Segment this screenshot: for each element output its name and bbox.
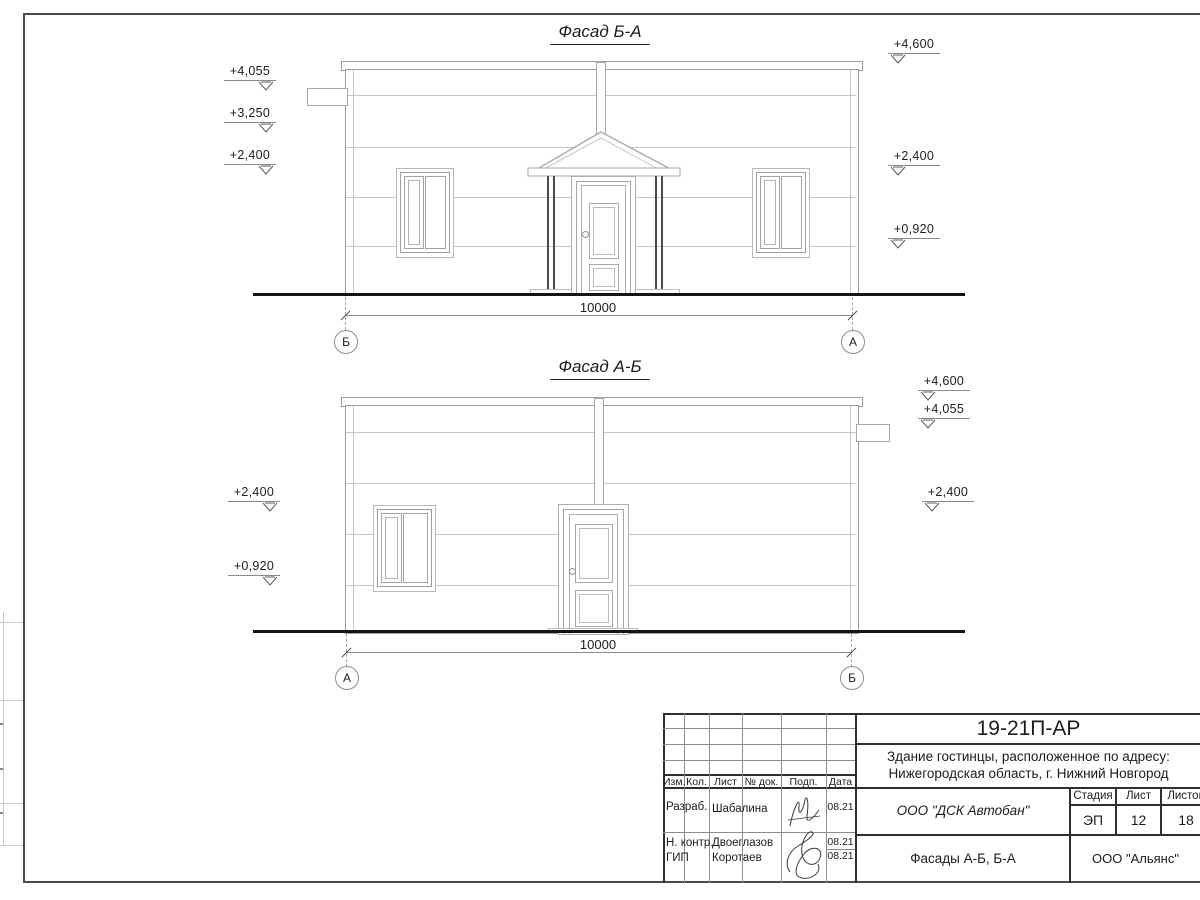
elevation-mark: +0,920 <box>888 222 940 239</box>
rear-door <box>558 504 629 635</box>
project-name-line1: Здание гостинцы, расположенное по адресу… <box>857 749 1200 764</box>
axis-marker-b: Б <box>334 330 358 354</box>
elevation-arrow-icon <box>258 81 274 92</box>
elevation-arrow-icon <box>890 239 906 250</box>
elevation-arrow-icon <box>890 54 906 65</box>
signer-date: 08.21 <box>826 850 855 862</box>
col-header-list: Лист <box>709 776 742 788</box>
dimension-label: 10000 <box>558 300 638 315</box>
corner-trim-right <box>850 406 851 631</box>
vent-pipe <box>596 62 606 134</box>
signer-name: Коротаев <box>712 852 762 864</box>
signature <box>782 828 826 880</box>
door-handle <box>582 231 589 238</box>
corner-trim-left <box>353 406 354 631</box>
porch-post <box>547 176 549 293</box>
frame-top <box>23 13 1200 15</box>
door-handle <box>569 568 576 575</box>
elevation-mark: +4,055 <box>224 64 276 81</box>
side-pipe <box>307 88 348 106</box>
elevation-mark: +4,055 <box>918 402 970 419</box>
window-sash-left <box>404 176 424 249</box>
door-panel-bottom <box>575 590 613 627</box>
signature <box>786 792 824 832</box>
porch-post <box>553 176 555 293</box>
dimension-line <box>345 315 852 316</box>
elevation-arrow-icon <box>920 419 936 430</box>
col-header-doc: № док. <box>742 776 781 788</box>
frame-bottom <box>23 881 1200 883</box>
elevation-mark: +2,400 <box>922 485 974 502</box>
corner-trim-left <box>353 70 354 293</box>
window <box>373 505 436 592</box>
dimension-label: 10000 <box>558 637 638 652</box>
elevation-arrow-icon <box>258 123 274 134</box>
signer-role: Разраб. <box>666 801 707 813</box>
signer-name: Шабалина <box>712 803 768 815</box>
col-header-izm: Изм. <box>663 776 684 788</box>
signer-date: 08.21 <box>826 801 855 813</box>
window-sash-right <box>781 176 802 249</box>
sheet-header: Лист <box>1117 790 1160 802</box>
ground-line <box>253 293 965 296</box>
axis-marker-b: Б <box>840 666 864 690</box>
vent-pipe <box>594 398 604 507</box>
window-glass <box>385 517 398 579</box>
elevation-arrow-icon <box>262 502 278 513</box>
elevation-mark: +2,400 <box>228 485 280 502</box>
door-panel-top <box>589 203 619 259</box>
signer-name: Двоеглазов <box>712 837 773 849</box>
elevation-mark: +0,920 <box>228 559 280 576</box>
stage-header: Стадия <box>1071 790 1115 802</box>
window-sash-left <box>760 176 780 249</box>
ground-line <box>253 630 965 633</box>
door-panel-bottom <box>589 264 619 291</box>
org-name: ООО "Альянс" <box>1071 851 1200 866</box>
signer-date: 08.21 <box>826 836 855 848</box>
frame-left <box>23 13 25 883</box>
porch-canopy <box>526 127 682 179</box>
elevation-arrow-icon <box>262 576 278 587</box>
col-header-podp: Подп. <box>781 776 826 788</box>
elevation-arrow-icon <box>890 166 906 177</box>
signer-role: Н. контр. <box>666 837 713 849</box>
window <box>752 168 810 258</box>
elevation-arrow-icon <box>920 391 936 402</box>
window <box>396 168 454 258</box>
drawing-title: Фасады А-Б, Б-А <box>857 851 1069 866</box>
window-sash-right <box>403 513 428 583</box>
elevation-mark: +2,400 <box>224 148 276 165</box>
window-frame <box>400 172 450 253</box>
window-frame <box>756 172 806 253</box>
sheets-header: Листов <box>1162 790 1200 802</box>
signer-role: ГИП <box>666 852 689 864</box>
door-panel-inset <box>593 207 615 255</box>
porch-post <box>655 176 657 293</box>
window-frame <box>377 509 432 587</box>
stage-value: ЭП <box>1071 812 1115 828</box>
window-glass <box>764 180 776 245</box>
project-name-line2: Нижегородская область, г. Нижний Новгоро… <box>857 766 1200 781</box>
side-pipe <box>856 424 890 442</box>
window-sash-left <box>381 513 402 583</box>
elevation-arrow-icon <box>924 502 940 513</box>
sheet-value: 12 <box>1117 812 1160 828</box>
drawing-sheet: Фасад Б-А <box>0 0 1200 900</box>
entrance-door <box>571 176 636 295</box>
elevation-mark: +2,400 <box>888 149 940 166</box>
elevation-mark: +4,600 <box>918 374 970 391</box>
col-header-data: Дата <box>826 776 855 788</box>
porch-post <box>661 176 663 293</box>
contractor-name: ООО "ДСК Автобан" <box>857 803 1069 818</box>
sheets-value: 18 <box>1162 812 1200 828</box>
elevation-mark: +4,600 <box>888 37 940 54</box>
elevation-mark: +3,250 <box>224 106 276 123</box>
dimension-line <box>346 652 851 653</box>
col-header-kol: Кол. <box>684 776 709 788</box>
facade-ba-title: Фасад Б-А <box>550 22 649 45</box>
door-panel-top <box>575 524 613 583</box>
document-code: 19-21П-АР <box>857 717 1200 741</box>
door-panel-inset <box>579 594 609 623</box>
door-panel-inset <box>593 268 615 287</box>
window-glass <box>408 180 420 245</box>
window-sash-right <box>425 176 446 249</box>
axis-marker-a: А <box>841 330 865 354</box>
corner-trim-right <box>850 70 851 293</box>
door-panel-inset <box>579 528 609 579</box>
elevation-arrow-icon <box>258 165 274 176</box>
facade-ab-title: Фасад А-Б <box>550 357 649 380</box>
axis-marker-a: А <box>335 666 359 690</box>
